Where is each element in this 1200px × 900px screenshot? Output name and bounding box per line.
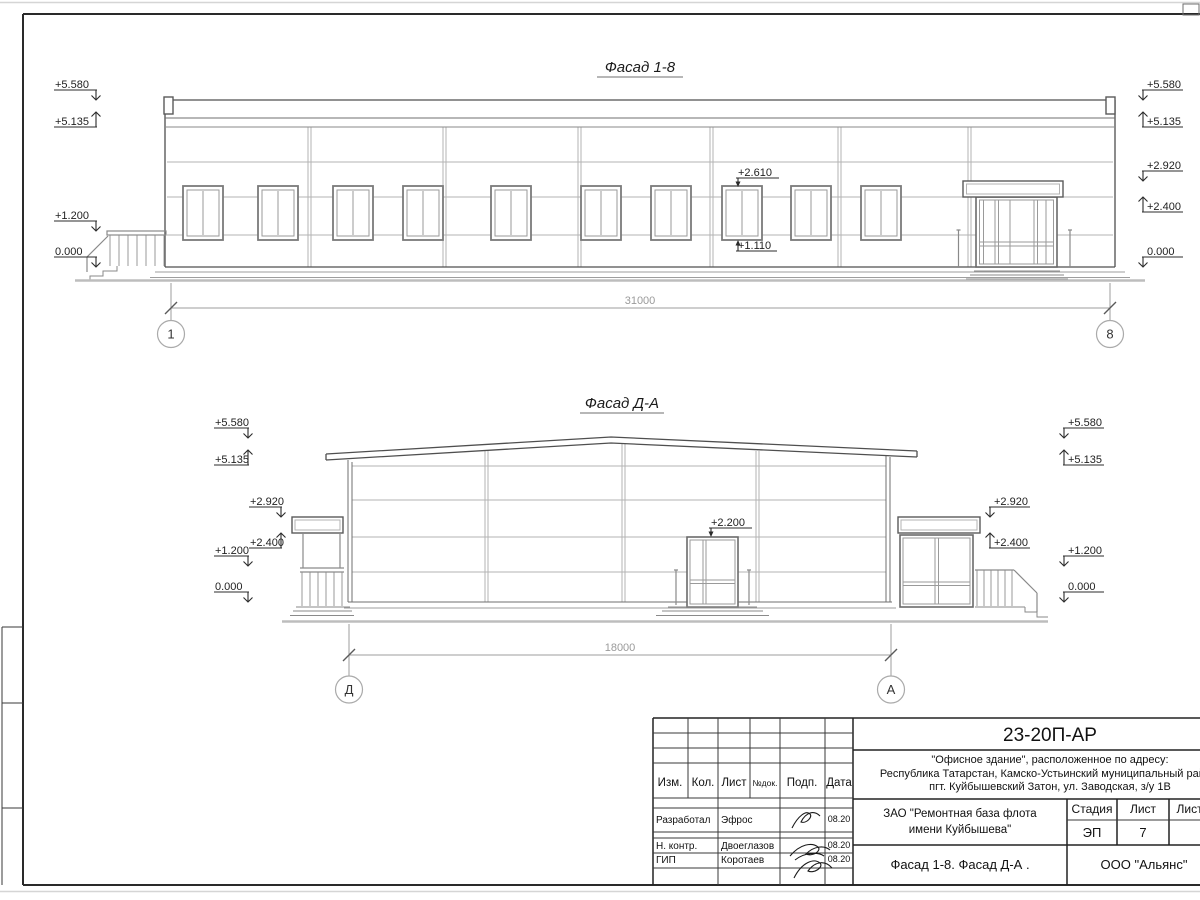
elevation-value: +1.200 bbox=[215, 545, 249, 557]
elevation-symbol-down bbox=[1139, 90, 1184, 100]
parapet-end-block-right bbox=[1106, 97, 1115, 114]
facade-d-a-title: Фасад Д-А bbox=[585, 395, 659, 412]
frame-left-cells bbox=[2, 627, 23, 885]
window-bottom-level: +1.110 bbox=[738, 240, 771, 252]
window bbox=[651, 186, 691, 240]
window bbox=[403, 186, 443, 240]
elevation-symbol-down bbox=[1060, 556, 1105, 566]
elevation-mark: +2.400 bbox=[1139, 197, 1184, 213]
column-izm: Изм. bbox=[658, 777, 683, 789]
sheet-number: 7 bbox=[1139, 825, 1146, 840]
porch-steps bbox=[90, 266, 117, 280]
parapet-end-block-left bbox=[164, 97, 173, 114]
elevation-value: +2.400 bbox=[1147, 201, 1181, 213]
left-porch bbox=[290, 517, 354, 616]
window bbox=[581, 186, 621, 240]
facade-d-a-view: Фасад Д-А bbox=[214, 395, 1104, 703]
stage-label: Стадия bbox=[1072, 802, 1113, 816]
axis-label-d: Д bbox=[345, 682, 354, 697]
column-list: Лист bbox=[722, 777, 748, 789]
sheet-label: Лист bbox=[1130, 802, 1157, 816]
elevation-mark: +5.580 bbox=[1139, 79, 1184, 100]
porch-handrail bbox=[107, 231, 166, 235]
elevation-mark: +2.400 bbox=[986, 533, 1031, 549]
elevation-mark: +5.135 bbox=[54, 112, 101, 128]
facade-1-8-building bbox=[75, 97, 1145, 281]
siding-lines bbox=[352, 466, 886, 572]
elevation-mark: +2.920 bbox=[249, 496, 286, 517]
window-top-level: +2.610 bbox=[738, 167, 772, 179]
row-role: Разработал bbox=[656, 814, 711, 826]
elevation-value: +2.400 bbox=[250, 537, 284, 549]
axis-label-a: А bbox=[887, 682, 896, 697]
elevation-symbol-down bbox=[1139, 257, 1184, 267]
project-address-line1: "Офисное здание", расположенное по адрес… bbox=[931, 754, 1168, 766]
elevation-value: +2.920 bbox=[1147, 160, 1181, 172]
elevation-value: +2.920 bbox=[250, 496, 284, 508]
elevation-value: +1.200 bbox=[1068, 545, 1102, 557]
right-canopy bbox=[898, 517, 980, 533]
elevation-value: +5.135 bbox=[55, 116, 89, 128]
row-date: 08.20 bbox=[828, 854, 851, 864]
side-porch bbox=[87, 231, 166, 280]
elevation-value: +5.135 bbox=[215, 454, 249, 466]
walls bbox=[348, 456, 890, 602]
axis-label-1: 1 bbox=[167, 327, 174, 342]
project-address-line3: пгт. Куйбышевский Затон, ул. Заводская, … bbox=[929, 781, 1171, 793]
signature-ncontrol bbox=[790, 844, 830, 860]
elevation-value: +2.400 bbox=[994, 537, 1028, 549]
column-ndok: №док. bbox=[753, 778, 778, 788]
elevation-mark: +2.920 bbox=[986, 496, 1031, 517]
dimension-value: 18000 bbox=[605, 642, 636, 654]
row-role: Н. контр. bbox=[656, 841, 697, 852]
elevation-marks-left: +5.580 +5.135 +1.200 0.000 bbox=[54, 79, 101, 267]
porch-balusters bbox=[302, 572, 342, 606]
document-code: 23-20П-АР bbox=[1003, 725, 1097, 746]
elevation-value: +5.580 bbox=[215, 417, 249, 429]
window bbox=[258, 186, 298, 240]
door-top-level: +2.200 bbox=[711, 517, 745, 529]
elevation-symbol-down bbox=[1139, 171, 1184, 181]
elevation-value: 0.000 bbox=[1068, 581, 1096, 593]
facade-d-a-building bbox=[282, 437, 1048, 622]
axis-label-8: 8 bbox=[1106, 327, 1113, 342]
elevation-mark: +5.135 bbox=[1060, 450, 1105, 466]
right-portal bbox=[900, 535, 973, 607]
facade-1-8-view: Фасад 1-8 bbox=[54, 59, 1183, 348]
entrance-canopy bbox=[963, 181, 1063, 197]
elevation-value: 0.000 bbox=[215, 581, 243, 593]
elevation-symbol-down bbox=[1060, 428, 1105, 438]
elevation-symbol-down bbox=[214, 592, 253, 602]
elevation-value: +2.920 bbox=[994, 496, 1028, 508]
elevation-mark: 0.000 bbox=[1139, 246, 1184, 267]
project-address-line2: Республика Татарстан, Камско-Устьинский … bbox=[880, 768, 1200, 780]
column-data: Дата bbox=[826, 777, 852, 789]
elevation-mark: 0.000 bbox=[1060, 581, 1105, 602]
facade-1-8-dimension: 31000 1 8 bbox=[158, 283, 1124, 348]
left-canopy bbox=[292, 517, 343, 533]
elevation-mark: +2.400 bbox=[249, 533, 286, 549]
elevation-mark: +1.200 bbox=[54, 210, 101, 231]
elevation-symbol-down bbox=[986, 507, 1031, 517]
elevation-mark: 0.000 bbox=[214, 581, 253, 602]
signature-developer bbox=[792, 813, 820, 828]
door bbox=[687, 537, 738, 607]
elevation-symbol-down bbox=[54, 90, 101, 100]
client-name-line2: имени Куйбышева" bbox=[909, 824, 1012, 836]
ramp-balusters bbox=[977, 570, 1012, 606]
column-podp: Подп. bbox=[787, 777, 818, 789]
row-role: ГИП bbox=[656, 855, 676, 866]
entrance bbox=[957, 181, 1073, 279]
elevation-marks-right: +5.580 +5.135 +2.920 +2.400 0.000 bbox=[1139, 79, 1184, 267]
right-porch bbox=[898, 517, 1048, 617]
signature-gip bbox=[794, 861, 832, 878]
elevation-symbol-down bbox=[214, 428, 253, 438]
elevation-mark: +1.200 bbox=[1060, 545, 1105, 566]
elevation-symbol-down bbox=[54, 257, 101, 267]
elevation-value: +5.580 bbox=[55, 79, 89, 91]
column-kol: Кол. bbox=[692, 777, 715, 789]
elevation-value: +5.135 bbox=[1147, 116, 1181, 128]
row-date: 08.20 bbox=[828, 840, 851, 850]
center-door bbox=[656, 537, 769, 616]
elevation-mark: 0.000 bbox=[54, 246, 101, 267]
sheet-canvas: Фасад 1-8 bbox=[0, 0, 1200, 900]
elevation-symbol-down bbox=[214, 556, 253, 566]
drawing-sheet: Фасад 1-8 bbox=[0, 0, 1200, 900]
elevation-mark: +5.135 bbox=[214, 450, 253, 466]
elevation-marks-left: +5.580 +5.135 +2.920 +2.400 +1.200 0.000 bbox=[214, 417, 286, 602]
row-name: Эфрос bbox=[721, 814, 753, 826]
elevation-symbol-down bbox=[249, 507, 286, 517]
stage-value: ЭП bbox=[1083, 825, 1102, 840]
facade-1-8-title: Фасад 1-8 bbox=[605, 59, 676, 76]
facade-d-a-dimension: 18000 Д А bbox=[336, 624, 905, 703]
row-name: Двоеглазов bbox=[721, 841, 774, 852]
client-name-line1: ЗАО "Ремонтная база флота bbox=[883, 808, 1037, 820]
door-level-mark: +2.200 bbox=[709, 517, 753, 537]
row-name: Коротаев bbox=[721, 855, 764, 866]
elevation-mark: +5.580 bbox=[1060, 417, 1105, 438]
elevation-value: 0.000 bbox=[55, 246, 83, 258]
window bbox=[333, 186, 373, 240]
elevation-mark: +1.200 bbox=[214, 545, 253, 566]
sheets-label: Листов bbox=[1177, 802, 1200, 816]
canopy-posts bbox=[303, 533, 340, 568]
elevation-mark: +5.580 bbox=[214, 417, 253, 438]
arrowhead-down bbox=[709, 532, 714, 538]
elevation-mark: +5.135 bbox=[1139, 112, 1184, 128]
entrance-portal bbox=[976, 197, 1057, 267]
title-block: 23-20П-АР "Офисное здание", расположенно… bbox=[653, 718, 1200, 885]
company-name: ООО "Альянс" bbox=[1101, 857, 1188, 872]
elevation-symbol-down bbox=[54, 221, 101, 231]
elevation-mark: +2.920 bbox=[1139, 160, 1184, 181]
window bbox=[491, 186, 531, 240]
window bbox=[861, 186, 901, 240]
window bbox=[722, 186, 762, 240]
porch-rail-slope bbox=[87, 236, 108, 272]
elevation-marks-right: +5.580 +5.135 +2.920 +2.400 +1.200 0.000 bbox=[986, 417, 1105, 602]
elevation-value: +1.200 bbox=[55, 210, 89, 222]
sheet-title: Фасад 1-8. Фасад Д-А . bbox=[890, 857, 1029, 872]
elevation-mark: +5.580 bbox=[54, 79, 101, 100]
porch-balusters bbox=[110, 235, 164, 266]
elevation-symbol-down bbox=[1060, 592, 1105, 602]
porch-handrail bbox=[300, 568, 344, 572]
elevation-value: +5.135 bbox=[1068, 454, 1102, 466]
elevation-value: +5.580 bbox=[1147, 79, 1181, 91]
elevation-value: 0.000 bbox=[1147, 246, 1175, 258]
elevation-value: +5.580 bbox=[1068, 417, 1102, 429]
row-date: 08.20 bbox=[828, 814, 851, 824]
window bbox=[791, 186, 831, 240]
dimension-value: 31000 bbox=[625, 295, 656, 307]
window bbox=[183, 186, 223, 240]
